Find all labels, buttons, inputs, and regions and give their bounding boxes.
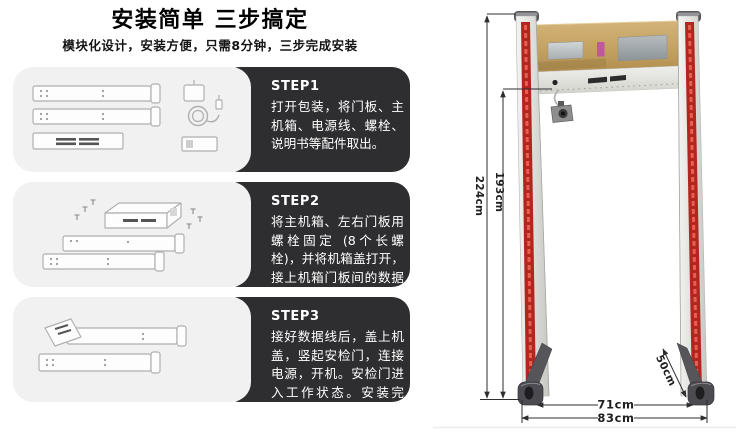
step1-text: 打开包装，将门板、主机箱、电源线、螺栓、说明书等配件取出。 <box>271 98 404 154</box>
crossbar <box>526 21 685 95</box>
outer-width-label: 83cm <box>597 411 634 425</box>
step2-label: STEP2 <box>271 194 404 209</box>
right-post <box>676 11 707 396</box>
page-title: 安装简单 三步搞定 <box>0 2 420 34</box>
step2-illustration-panel <box>13 182 251 287</box>
step2-content: STEP2 将主机箱、左右门板用螺栓固定 (8个长螺栓)，并将机箱盖打开，接上机… <box>271 194 404 306</box>
gate-dimension-diagram: 224cm 193cm 50cm 71cm 83cm <box>430 0 738 442</box>
step2-text: 将主机箱、左右门板用螺栓固定 (8个长螺栓)，并将机箱盖打开，接上机箱门板间的数… <box>271 213 404 306</box>
step3-connected-illustration <box>23 306 241 393</box>
step3-label: STEP3 <box>271 309 404 324</box>
page-subtitle: 模块化设计，安装方便，只需8分钟，三步完成安装 <box>0 35 420 54</box>
walkthrough-gate-photo: 224cm 193cm 50cm 71cm 83cm <box>430 0 738 442</box>
step1-content: STEP1 打开包装，将门板、主机箱、电源线、螺栓、说明书等配件取出。 <box>271 79 404 154</box>
step1-illustration-panel <box>13 67 251 172</box>
power-adapter-icon <box>184 85 204 101</box>
lcd-screen <box>548 42 583 60</box>
buzzer-dot <box>552 80 557 85</box>
step1-label: STEP1 <box>271 79 404 94</box>
step2-row: STEP2 将主机箱、左右门板用螺栓固定 (8个长螺栓)，并将机箱盖打开，接上机… <box>13 182 410 287</box>
step3-row: STEP3 接好数据线后，盖上机盖，竖起安检门，连接电源，开机。安检门进入工作状… <box>13 297 410 402</box>
step3-content: STEP3 接好数据线后，盖上机盖，竖起安检门，连接电源，开机。安检门进入工作状… <box>271 309 404 421</box>
top-panel <box>618 35 667 61</box>
total-height-label: 224cm <box>473 176 485 217</box>
step3-illustration-panel <box>13 297 251 402</box>
step2-assembly-illustration <box>23 191 241 278</box>
step1-parts-illustration <box>23 76 241 163</box>
pink-label <box>597 42 605 57</box>
page: 安装简单 三步搞定 模块化设计，安装方便，只需8分钟，三步完成安装 <box>0 0 738 442</box>
base-depth-label: 50cm <box>653 353 678 388</box>
step1-row: STEP1 打开包装，将门板、主机箱、电源线、螺栓、说明书等配件取出。 <box>13 67 410 172</box>
step3-text: 接好数据线后，盖上机盖，竖起安检门，连接电源，开机。安检门进入工作状态。安装完成… <box>271 328 404 421</box>
inner-height-label: 193cm <box>493 172 505 213</box>
inner-width-label: 71cm <box>597 398 634 412</box>
camera <box>551 90 573 123</box>
